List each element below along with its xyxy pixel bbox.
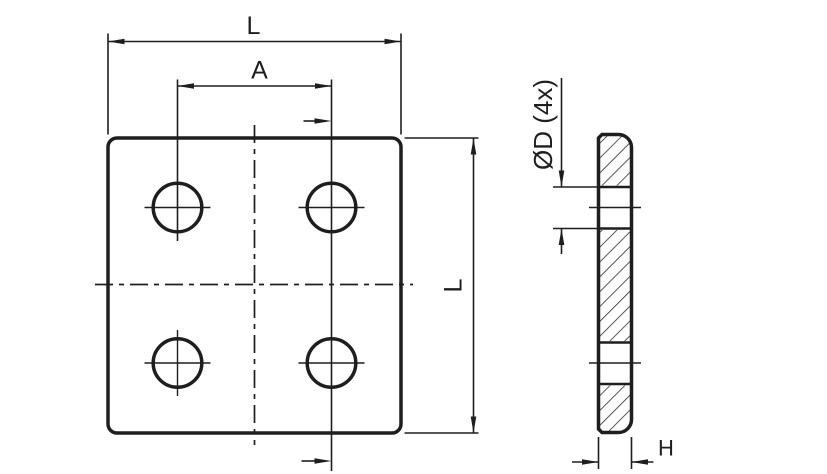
section-direction-arrow-top (315, 118, 332, 123)
arrowhead-right (315, 83, 332, 89)
dimension-label-height-L: L (440, 278, 468, 292)
section-direction-arrow-bottom (315, 458, 332, 463)
hatch-area-bottom (596, 386, 634, 434)
dimension-thickness-H: H (572, 436, 674, 470)
dimension-label-thickness-H: H (658, 436, 674, 461)
arrowhead-up (471, 138, 477, 155)
hatch-area-top (596, 133, 634, 186)
dimension-hole-diameter-D: ØD (4x) (528, 78, 597, 254)
arrowhead-left (178, 83, 195, 89)
front-view: L A L (95, 12, 479, 471)
plate-outline (108, 138, 401, 433)
arrowhead-left (632, 459, 649, 464)
arrowhead-down (471, 417, 477, 434)
dimension-label-width-L: L (247, 12, 261, 40)
technical-drawing-canvas: L A L (0, 0, 827, 474)
arrowhead-right (582, 459, 599, 464)
hatch-area-middle (596, 230, 634, 341)
arrowhead-left (108, 39, 125, 45)
dimension-label-hole-diameter: ØD (4x) (528, 79, 558, 170)
hatch-areas (596, 133, 634, 434)
arrowhead-right (385, 39, 402, 45)
arrowhead-up (559, 229, 565, 246)
technical-drawing-page: L A L (0, 0, 827, 474)
section-view: ØD (4x) H (528, 78, 674, 469)
arrowhead-down (559, 171, 565, 188)
dimension-height-L: L (405, 138, 479, 433)
dimension-label-hole-spacing-A: A (251, 57, 268, 85)
